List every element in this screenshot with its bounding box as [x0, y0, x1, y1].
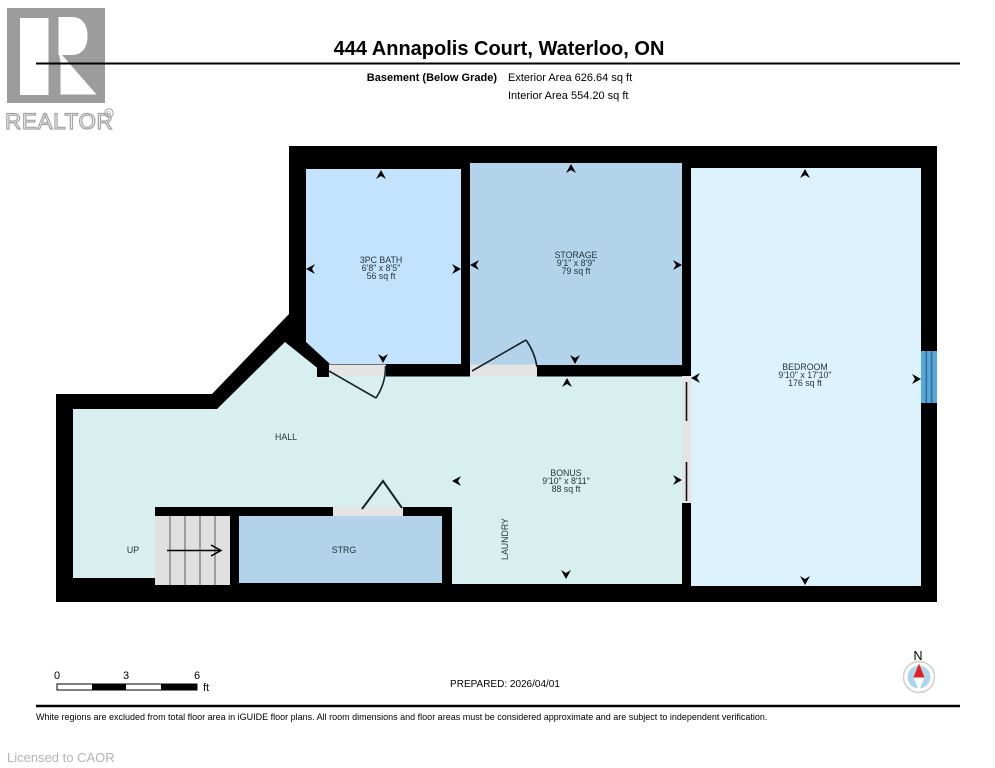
svg-text:88 sq ft: 88 sq ft [552, 484, 581, 494]
svg-text:3: 3 [123, 670, 129, 682]
svg-text:PREPARED: 2026/04/01: PREPARED: 2026/04/01 [450, 679, 560, 690]
svg-text:REALTOR: REALTOR [5, 109, 113, 134]
svg-text:444 Annapolis Court, Waterloo,: 444 Annapolis Court, Waterloo, ON [334, 38, 665, 60]
svg-text:UP: UP [127, 545, 139, 555]
svg-text:LAUNDRY: LAUNDRY [500, 518, 510, 560]
svg-text:STRG: STRG [332, 545, 357, 555]
svg-text:ft: ft [203, 682, 209, 694]
svg-text:Exterior Area 626.64 sq ft: Exterior Area 626.64 sq ft [508, 72, 632, 84]
svg-text:6: 6 [194, 670, 200, 682]
svg-text:HALL: HALL [275, 432, 297, 442]
svg-text:R: R [107, 111, 112, 118]
svg-text:56 sq ft: 56 sq ft [367, 271, 396, 281]
svg-text:176 sq ft: 176 sq ft [788, 378, 822, 388]
svg-text:White regions are excluded fro: White regions are excluded from total fl… [36, 712, 767, 722]
svg-text:Basement (Below Grade): Basement (Below Grade) [367, 72, 498, 84]
svg-text:Licensed to CAOR: Licensed to CAOR [7, 750, 115, 765]
svg-text:Interior Area 554.20 sq ft: Interior Area 554.20 sq ft [508, 90, 628, 102]
svg-text:0: 0 [54, 670, 60, 682]
svg-text:79 sq ft: 79 sq ft [562, 266, 591, 276]
